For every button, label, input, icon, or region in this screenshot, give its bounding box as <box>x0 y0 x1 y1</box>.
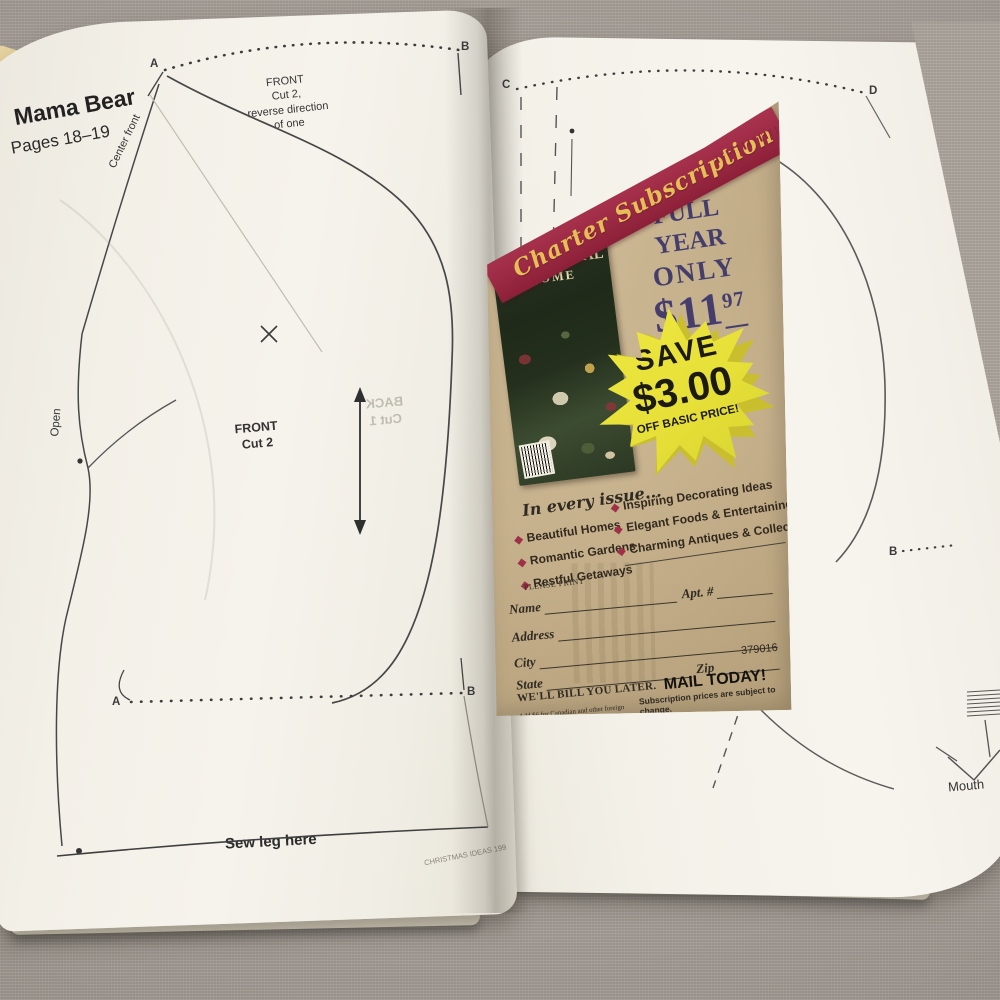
marker-b-bottom: B <box>467 686 475 698</box>
diamond-bullet-icon: ◆ <box>616 545 626 558</box>
name-label: Name <box>508 599 541 618</box>
marker-b-side: B <box>889 546 897 558</box>
photo-open-pattern-magazine: { "photo_alt": "Open craft magazine show… <box>0 0 1000 1000</box>
sew-leg-label: Sew leg here <box>225 831 317 853</box>
apt-label: Apt. # <box>681 583 714 602</box>
front-cut2-label: FRONT Cut 2 <box>214 416 301 456</box>
marker-a-top: A <box>150 58 158 70</box>
front-reverse-note: FRONT Cut 2, reverse direction of one <box>221 68 354 138</box>
mouth-label: Mouth <box>947 776 984 794</box>
diamond-bullet-icon: ◆ <box>514 534 524 547</box>
ghost-back-label: BACK Cut 1 <box>349 392 422 432</box>
marker-d: D <box>869 85 877 97</box>
marker-a-bottom: A <box>112 696 120 708</box>
address-label: Address <box>511 626 555 646</box>
city-label: City <box>513 654 536 672</box>
diamond-bullet-icon: ◆ <box>613 523 623 536</box>
open-label: Open <box>49 408 63 437</box>
marker-c: C <box>502 79 510 91</box>
barcode <box>519 440 556 479</box>
left-pattern-page: Mama Bear Pages 18–19 FRONT Cut 2, rever… <box>0 9 518 932</box>
diamond-bullet-icon: ◆ <box>517 556 527 569</box>
diamond-bullet-icon: ◆ <box>610 501 620 514</box>
page-title: Mama Bear <box>12 83 138 131</box>
issue-item-label: Beautiful Homes <box>526 517 622 544</box>
marker-b-top: B <box>461 41 469 53</box>
page-footer: CHRISTMAS IDEAS 199 <box>423 843 507 868</box>
apt-line <box>716 580 773 599</box>
center-front-label: Center front <box>107 113 143 170</box>
